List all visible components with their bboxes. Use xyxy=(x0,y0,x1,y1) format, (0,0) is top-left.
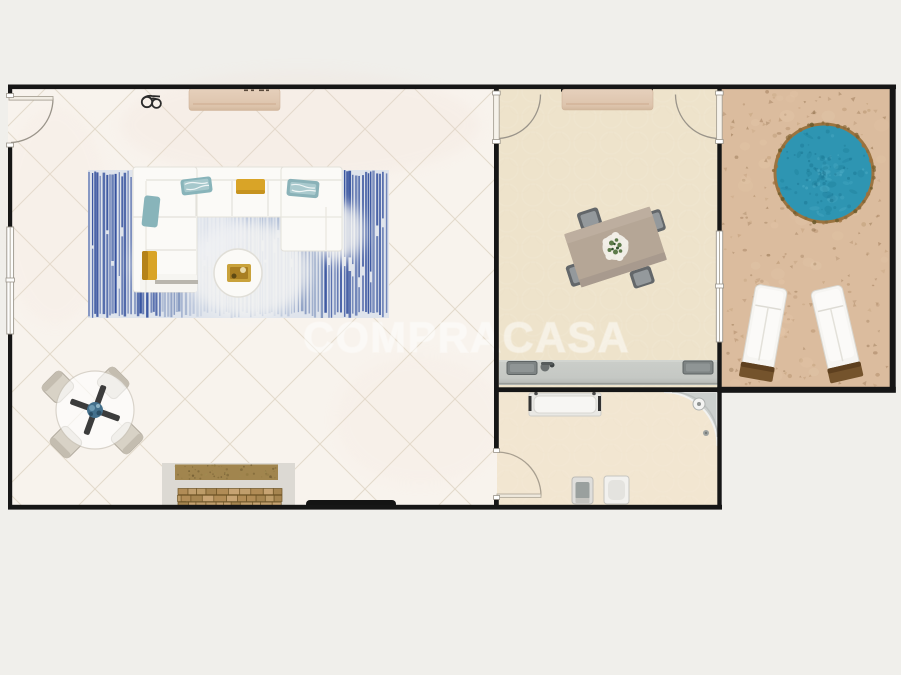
svg-text:COMPRACASA: COMPRACASA xyxy=(303,314,630,362)
